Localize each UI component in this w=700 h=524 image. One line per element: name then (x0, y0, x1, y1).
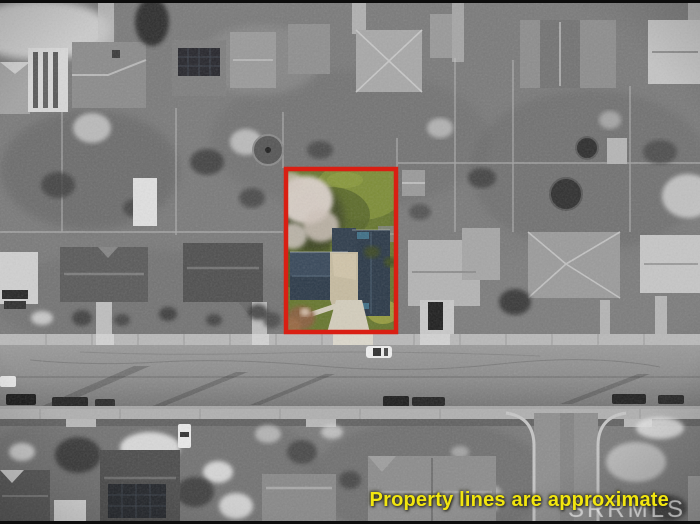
caption-text: Property lines are approximate (370, 489, 669, 512)
aerial-scene (0, 0, 700, 524)
vignette (0, 0, 700, 524)
frame-top (0, 0, 700, 3)
aerial-listing-photo: SRRMLS Property lines are approximate (0, 0, 700, 524)
